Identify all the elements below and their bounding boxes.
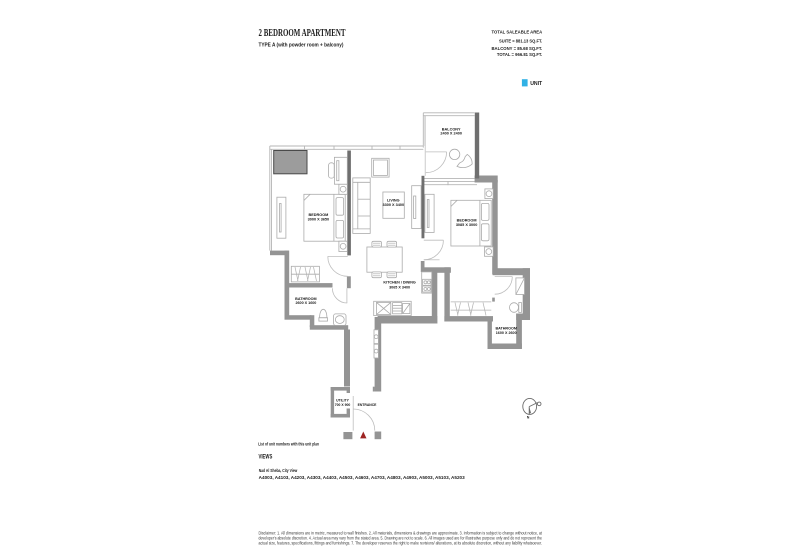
svg-text:KITCHEN / DINING: KITCHEN / DINING [383,281,416,285]
svg-text:BALCONY = 85.68 SQ.FT.: BALCONY = 85.68 SQ.FT. [492,46,543,52]
svg-text:BEDROOM: BEDROOM [308,213,328,217]
svg-text:3085 X 3000: 3085 X 3000 [456,223,478,227]
svg-text:List of unit numbers with this: List of unit numbers with this unit plan [258,442,319,447]
svg-text:2400 X 2400: 2400 X 2400 [440,132,462,136]
svg-text:N: N [527,416,530,420]
svg-text:TOTAL SALEABLE AREA: TOTAL SALEABLE AREA [492,30,543,36]
svg-text:SUITE = 881.13 SQ.FT.: SUITE = 881.13 SQ.FT. [499,39,543,45]
svg-text:VIEWS: VIEWS [259,453,273,460]
svg-text:2600 X 1600: 2600 X 1600 [295,301,316,305]
svg-text:UNIT: UNIT [530,81,543,87]
svg-text:3000 X 3650: 3000 X 3650 [308,218,330,222]
svg-text:ENTRANCE: ENTRANCE [358,403,378,407]
svg-text:3300 X 3400: 3300 X 3400 [383,203,405,207]
svg-text:A4003, A4103, A4203, A4303, A4: A4003, A4103, A4203, A4303, A4403, A4503… [259,475,466,480]
svg-text:700 X 900: 700 X 900 [335,403,351,407]
svg-text:Nad Al Sheba, City View: Nad Al Sheba, City View [259,468,298,473]
svg-text:actual size, features, specifi: actual size, features, specifications, f… [259,541,543,546]
svg-text:TOTAL = 966.81 SQ.FT.: TOTAL = 966.81 SQ.FT. [497,52,543,58]
svg-text:1600 X 2600: 1600 X 2600 [496,331,517,335]
svg-text:3065 X 3400: 3065 X 3400 [389,285,410,289]
svg-text:TYPE A (with powder room + bal: TYPE A (with powder room + balcony) [259,42,344,48]
svg-text:2 BEDROOM APARTMENT: 2 BEDROOM APARTMENT [259,28,346,39]
